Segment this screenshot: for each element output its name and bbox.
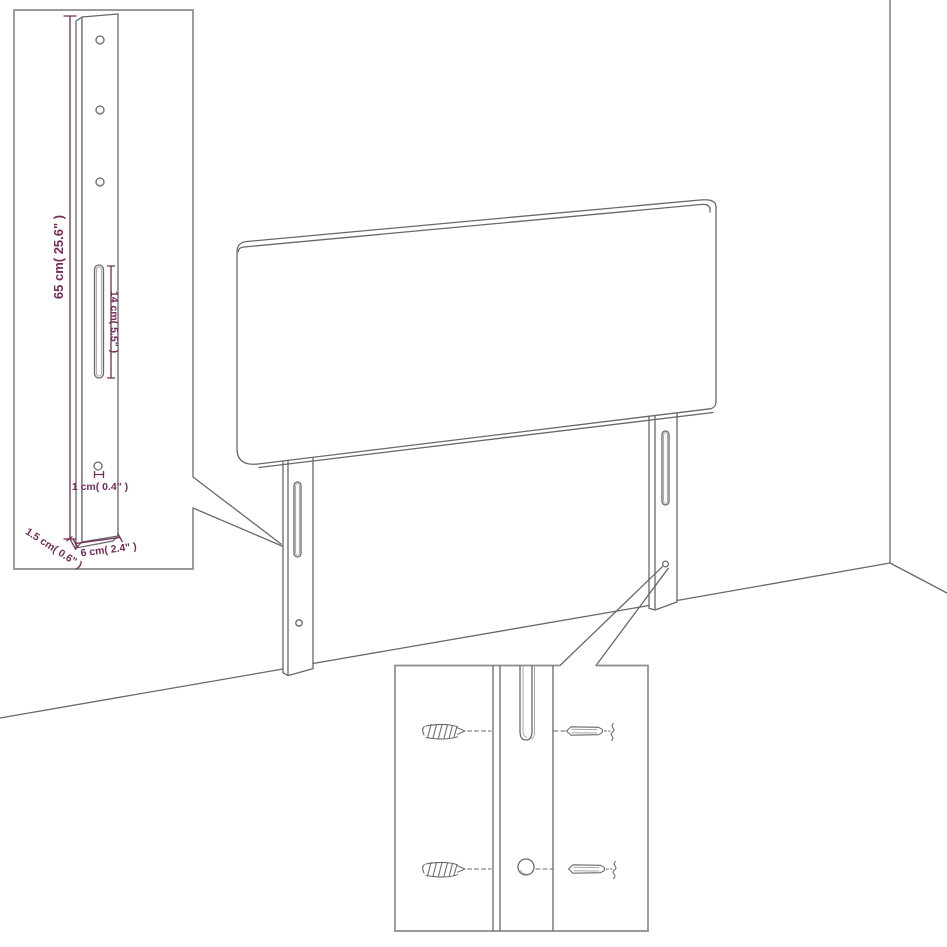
right-leg-hole	[663, 561, 669, 567]
wall-plug-icon	[567, 724, 614, 741]
headboard-right-leg	[649, 414, 677, 610]
screw-tip	[458, 728, 466, 734]
magnifier-cone-line	[193, 508, 282, 546]
screw-head	[423, 727, 425, 736]
leg-dimension-inset: 65 cm( 25.6" ) 14 cm( 5.5" ) 1 cm( 0.4" …	[14, 10, 193, 571]
magnifier-cone-line	[193, 477, 281, 544]
left-leg-slot	[294, 482, 301, 557]
leg-side-face	[76, 17, 82, 548]
mounting-detail-inset	[395, 666, 648, 932]
screw-head	[423, 865, 425, 874]
plug-body	[569, 865, 605, 873]
assembly-diagram-page: 65 cm( 25.6" ) 14 cm( 5.5" ) 1 cm( 0.4" …	[0, 0, 947, 947]
dimension-total-height: 65 cm( 25.6" )	[51, 16, 77, 539]
plug-ridges	[572, 729, 597, 733]
alignment-dashed-lines	[468, 731, 566, 869]
mounting-slot-inner	[523, 666, 527, 737]
leg-side-view	[76, 14, 118, 548]
inset-border	[395, 666, 648, 932]
floor-line	[0, 563, 947, 718]
headboard	[237, 200, 716, 676]
headboard-panel	[237, 200, 716, 465]
headboard-left-leg	[283, 458, 313, 676]
dimension-label-hole-diameter: 1 cm( 0.4" )	[72, 481, 128, 493]
right-leg-slot	[662, 431, 669, 505]
dimension-label-leg-width: 6 cm( 2.4" )	[80, 541, 137, 560]
screw-tip	[458, 866, 466, 872]
plug-spring-squiggle	[613, 862, 616, 879]
plug-ridges	[574, 867, 599, 871]
magnifier-cone-line	[560, 567, 662, 666]
mounting-hole	[518, 859, 534, 875]
dimension-label-total-height: 65 cm( 25.6" )	[51, 215, 66, 299]
dimension-leg-depth: 1.5 cm( 0.6" )	[23, 526, 84, 572]
mounting-slot	[520, 666, 532, 740]
magnifier-cone-line	[596, 568, 668, 665]
left-magnifier-cone	[193, 477, 282, 546]
dimension-label-slot-length: 14 cm( 5.5" )	[108, 291, 120, 353]
plug-body	[567, 727, 603, 735]
screw-icon	[423, 862, 465, 877]
wall-plug-icon	[569, 862, 616, 879]
screw-threads	[428, 725, 458, 739]
assembly-diagram-canvas: 65 cm( 25.6" ) 14 cm( 5.5" ) 1 cm( 0.4" …	[0, 0, 947, 947]
screw-icon	[423, 724, 465, 739]
plug-spring-squiggle	[611, 724, 614, 741]
left-leg-hole	[296, 620, 302, 626]
right-magnifier-cone	[560, 567, 668, 666]
leg-closeup	[493, 666, 553, 931]
adjustment-slot	[95, 265, 104, 378]
screw-threads	[428, 863, 458, 877]
